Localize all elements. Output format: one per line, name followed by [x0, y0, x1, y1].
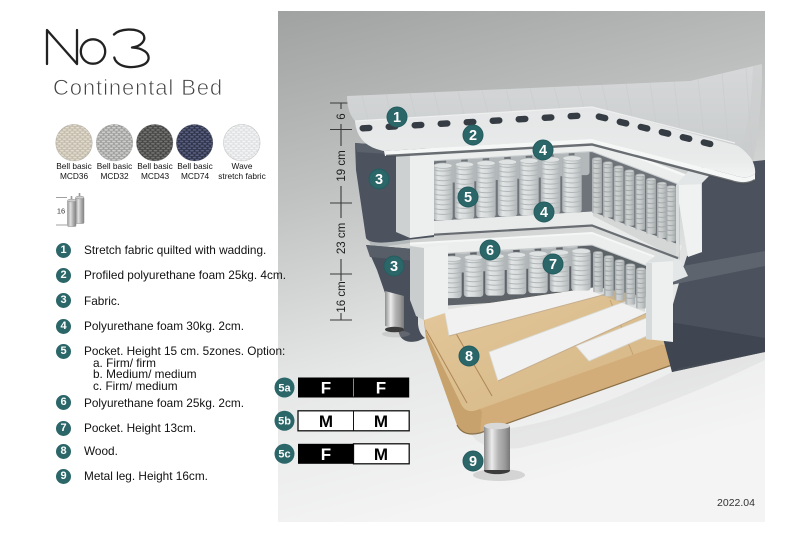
svg-text:F: F — [321, 379, 331, 398]
svg-text:9: 9 — [469, 454, 477, 470]
svg-text:2: 2 — [469, 128, 477, 144]
svg-text:M: M — [374, 445, 388, 464]
svg-text:6: 6 — [486, 243, 494, 259]
svg-text:5b: 5b — [278, 416, 291, 428]
svg-text:1: 1 — [393, 110, 401, 126]
svg-text:F: F — [376, 379, 386, 398]
svg-text:8: 8 — [465, 349, 473, 365]
svg-text:2022.04: 2022.04 — [717, 497, 755, 509]
svg-text:4: 4 — [539, 143, 547, 159]
svg-text:M: M — [374, 412, 388, 431]
svg-text:3: 3 — [390, 259, 398, 275]
svg-text:19 cm: 19 cm — [336, 150, 348, 181]
svg-text:6: 6 — [336, 113, 348, 119]
svg-text:3: 3 — [375, 172, 383, 188]
svg-text:5a: 5a — [278, 382, 291, 394]
svg-text:5: 5 — [464, 190, 472, 206]
svg-text:5c: 5c — [278, 449, 290, 461]
svg-text:F: F — [321, 445, 331, 464]
svg-text:16: 16 — [57, 207, 65, 216]
svg-text:16 cm: 16 cm — [336, 281, 348, 312]
svg-text:M: M — [319, 412, 333, 431]
svg-text:23 cm: 23 cm — [336, 223, 348, 254]
svg-text:7: 7 — [549, 257, 557, 273]
svg-text:4: 4 — [540, 205, 548, 221]
